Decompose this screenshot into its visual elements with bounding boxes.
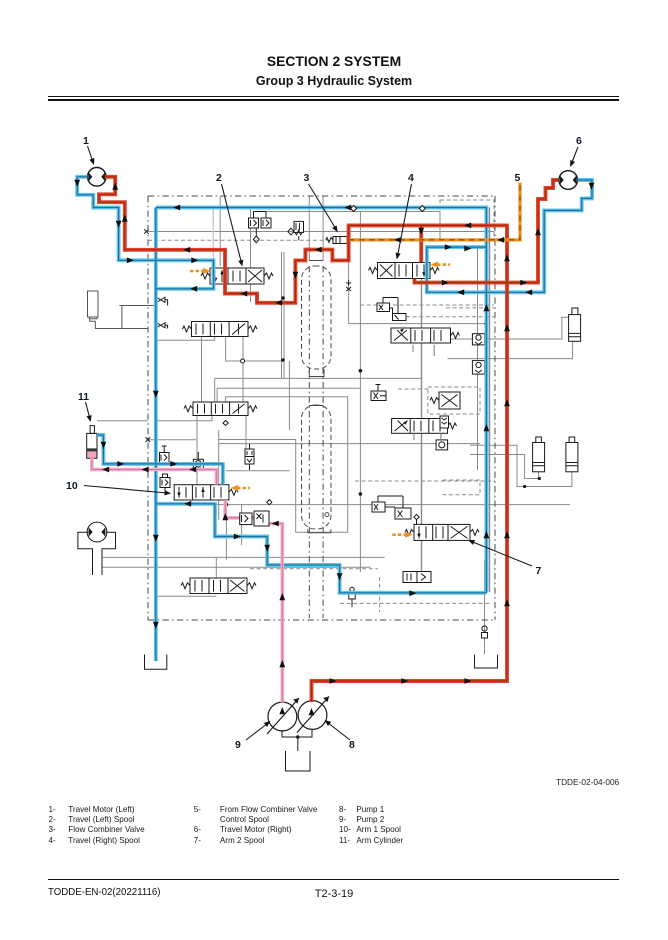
svg-text:1: 1 [83, 135, 89, 147]
svg-text:8: 8 [349, 739, 355, 751]
svg-text:5: 5 [515, 172, 521, 184]
svg-text:7: 7 [536, 565, 542, 577]
svg-text:4: 4 [408, 172, 414, 184]
svg-text:2: 2 [216, 172, 222, 184]
svg-text:10: 10 [66, 480, 78, 492]
svg-text:11: 11 [78, 391, 89, 403]
svg-text:6: 6 [576, 135, 582, 147]
svg-text:3: 3 [304, 172, 310, 184]
svg-text:9: 9 [235, 739, 241, 751]
